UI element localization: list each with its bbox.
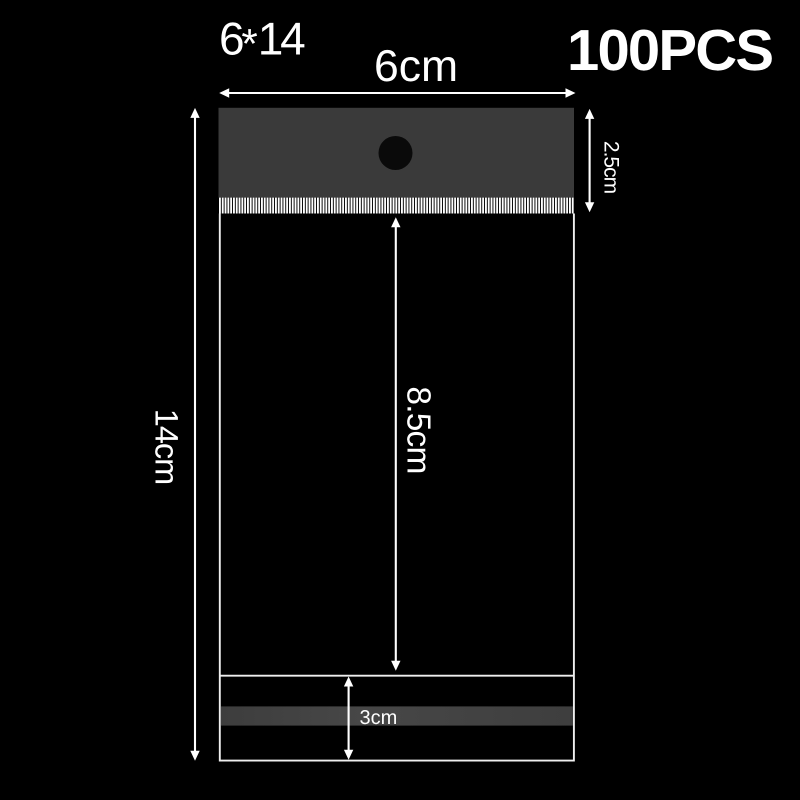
svg-text:6cm: 6cm bbox=[374, 42, 458, 91]
svg-text:8.5cm: 8.5cm bbox=[400, 386, 437, 473]
svg-text:6*14: 6*14 bbox=[219, 13, 305, 68]
svg-text:14cm: 14cm bbox=[149, 409, 185, 484]
svg-text:2.5cm: 2.5cm bbox=[600, 141, 623, 194]
svg-text:3cm: 3cm bbox=[360, 707, 398, 729]
svg-text:100PCS: 100PCS bbox=[567, 18, 772, 83]
